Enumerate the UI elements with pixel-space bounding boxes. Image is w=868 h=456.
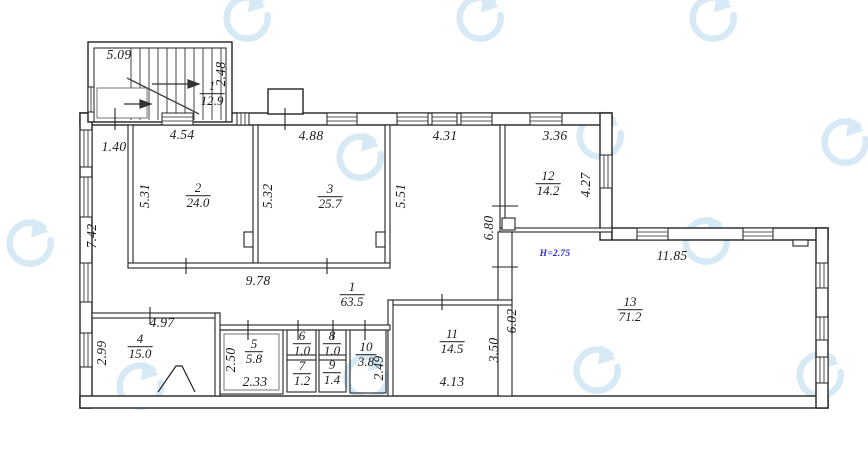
dim-hall-height: 5.51 [393, 184, 409, 209]
floor-plan-page: 5.09 2.48 1.40 4.54 4.88 4.31 3.36 7.42 … [0, 0, 868, 456]
room-area: 1.2 [293, 375, 311, 389]
room-area: 5.8 [245, 353, 263, 367]
dim-room4-height: 2.99 [94, 341, 110, 366]
room-label-11: 11 14.5 [440, 327, 465, 357]
room-area: 25.7 [318, 198, 343, 212]
room-number: 6 [293, 329, 311, 344]
room-number: 10 [356, 340, 377, 355]
room-label-8: 8 1.0 [323, 329, 341, 359]
dim-room4-width: 4.97 [150, 315, 175, 331]
room-area: 14.2 [536, 185, 561, 199]
room-area: 63.5 [340, 296, 365, 310]
room-number: 1 [340, 280, 365, 295]
room-number: 7 [293, 359, 311, 374]
dim-room11-width: 4.13 [440, 374, 465, 390]
room-area: 15.0 [128, 348, 153, 362]
room-label-3: 3 25.7 [318, 182, 343, 212]
ceiling-height-note: Н=2.75 [540, 249, 571, 259]
dim-room3-width: 4.88 [299, 128, 324, 144]
room-label-13: 13 71.2 [618, 295, 643, 325]
room-number: 11 [440, 327, 465, 342]
dim-room3-height: 5.32 [260, 184, 276, 209]
room-label-9: 9 1.4 [323, 358, 341, 388]
room-label-5: 5 5.8 [245, 337, 263, 367]
room-number: 4 [128, 332, 153, 347]
room-label-corridor: 1 63.5 [340, 280, 365, 310]
dim-room12-width: 3.36 [543, 128, 568, 144]
room-area: 12.9 [200, 95, 225, 109]
floor-plan-drawing [0, 0, 868, 456]
dim-room2-height: 5.31 [137, 184, 153, 209]
room-area: 24.0 [186, 197, 211, 211]
dim-corridor-height: 6.80 [481, 216, 497, 241]
room-label-stairwell: 1 12.9 [200, 79, 225, 109]
dim-left-wall: 7.42 [84, 224, 100, 249]
room-number: 3 [318, 182, 343, 197]
room-number: 13 [618, 295, 643, 310]
dim-room11-height: 3.50 [486, 338, 502, 363]
room-number: 2 [186, 181, 211, 196]
room-number: 5 [245, 337, 263, 352]
room-label-2: 2 24.0 [186, 181, 211, 211]
room-label-4: 4 15.0 [128, 332, 153, 362]
dim-hall-width: 4.31 [433, 128, 458, 144]
dim-room5-width: 2.33 [243, 374, 268, 390]
room-number: 12 [536, 169, 561, 184]
room-area: 1.4 [323, 374, 341, 388]
dim-corridor-width: 9.78 [246, 273, 271, 289]
dim-room13-height: 6.02 [504, 309, 520, 334]
dim-stair-width: 5.09 [107, 47, 132, 63]
room-number: 9 [323, 358, 341, 373]
dim-room2-width: 4.54 [170, 127, 195, 143]
room-area: 1.0 [293, 345, 311, 359]
dim-room12-height: 4.27 [578, 173, 594, 198]
room-number: 8 [323, 329, 341, 344]
room-label-12: 12 14.2 [536, 169, 561, 199]
room-area: 3.8 [356, 356, 377, 370]
room-number: 1 [200, 79, 225, 94]
room-area: 71.2 [618, 311, 643, 325]
dim-entry-width: 1.40 [102, 139, 127, 155]
room-area: 14.5 [440, 343, 465, 357]
dim-room13-width: 11.85 [657, 248, 688, 264]
room-label-7: 7 1.2 [293, 359, 311, 389]
room-label-10: 10 3.8 [356, 340, 377, 370]
room-label-6: 6 1.0 [293, 329, 311, 359]
dim-room5-height: 2.50 [223, 348, 239, 373]
